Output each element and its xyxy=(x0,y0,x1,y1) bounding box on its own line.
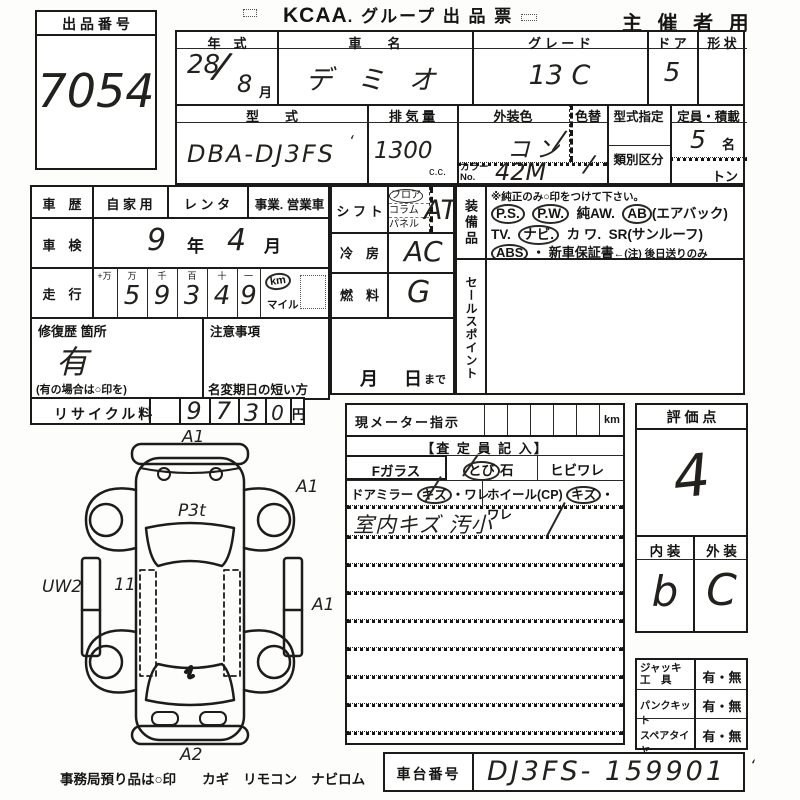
grid-line xyxy=(32,317,328,319)
mirror-label: ドアミラー xyxy=(351,488,413,502)
grid-line xyxy=(149,399,151,423)
repair-history-value: 有 xyxy=(56,337,88,383)
name-change-label: 名変期日の短い方 xyxy=(208,379,308,398)
shift-value: AT xyxy=(424,195,457,226)
history-option-business: 事業. 営業車 xyxy=(247,194,332,213)
sales-point-box: セールスポイント xyxy=(455,258,745,395)
name-change-made-suffix: まで xyxy=(424,371,446,387)
grid-line xyxy=(485,187,487,258)
inspection-year-value: 9 xyxy=(147,223,166,258)
shape-label: 形 状 xyxy=(697,33,747,52)
pen-tick: ‘ xyxy=(750,756,755,775)
name-change-day-unit: 日 xyxy=(404,365,422,391)
front-left-fender xyxy=(86,488,136,550)
shift-label: シ フ ト xyxy=(332,201,387,220)
class-division-label: 類別区分 xyxy=(607,149,670,168)
fuel-label: 燃 料 xyxy=(332,285,387,304)
grid-line xyxy=(332,232,453,234)
ton-unit: トン xyxy=(712,166,738,185)
grid-line xyxy=(260,267,261,317)
recycle-yen-unit: 円 xyxy=(290,404,307,423)
annotation-rear: A2 xyxy=(179,745,202,765)
puncture-kit-value: 有・無 xyxy=(694,696,750,715)
grid-line xyxy=(472,754,474,790)
inspection-label: 車 検 xyxy=(32,235,92,254)
jack-tools-label: ジャッキ 工 具 xyxy=(640,662,692,686)
mirror-ware: ・ワレ xyxy=(452,488,490,502)
mirror-row: ドアミラー キズ・ワレ xyxy=(351,484,489,504)
assessor-panel: 現メーター指示 km 【査 定 員 記 入】 Fガラス とび石 ヒビワレ ドアミ… xyxy=(345,403,625,745)
sales-point-label: セールスポイント xyxy=(463,266,480,390)
displacement-label: 排 気 量 xyxy=(367,106,457,125)
annotation-left: UW2 xyxy=(42,577,82,597)
model-label: 型 式 xyxy=(177,106,367,125)
sheet-title: KCAA . グループ 出 品 票 xyxy=(283,2,513,28)
equipment-ab: AB xyxy=(622,204,652,224)
car-name-label: 車 名 xyxy=(277,33,472,52)
note-line xyxy=(347,619,623,623)
pen-scribble xyxy=(186,667,193,677)
mileage-digit: 9 xyxy=(237,281,260,311)
equipment-line-1: P.S. P.W. 純AW. AB(エアバック) xyxy=(491,202,728,224)
meter-label: 現メーター指示 xyxy=(355,412,460,431)
interior-label: 内 装 xyxy=(637,540,693,560)
grid-line xyxy=(637,689,746,690)
equipment-tv: TV. xyxy=(491,227,511,242)
equipment-label: 装備品 xyxy=(461,191,480,255)
shift-option-panel: パネル xyxy=(389,218,429,231)
grid-line xyxy=(637,559,746,560)
rear-right-fender xyxy=(244,630,294,692)
month-suffix: 月 xyxy=(259,82,272,101)
lot-number-label: 出 品 番 号 xyxy=(37,12,155,36)
recycle-digit: 9 xyxy=(179,397,209,425)
grid-line xyxy=(576,405,577,435)
note-line xyxy=(347,703,623,707)
interior-exterior-panel: 内 装 外 装 b C xyxy=(635,535,748,633)
capacity-label: 定員・積載 xyxy=(670,106,747,125)
exterior-grade-value: C xyxy=(693,565,750,616)
score-label: 評 価 点 xyxy=(637,405,746,430)
fglass-label: Fガラス xyxy=(347,460,445,480)
grid-line xyxy=(537,455,538,480)
note-line xyxy=(347,563,623,567)
model-tick-mark: ‘ xyxy=(349,132,354,150)
grid-line xyxy=(92,217,94,267)
year-month-value: 8 xyxy=(237,70,252,98)
mileage-digit: 5 xyxy=(117,281,147,311)
right-tail-light xyxy=(200,712,226,725)
mileage-label: 走 行 xyxy=(32,284,92,303)
jack-tools-value: 有・無 xyxy=(694,667,750,686)
annotation-front: A1 xyxy=(181,430,204,447)
score-panel: 評 価 点 4 xyxy=(635,403,748,538)
lot-number-box: 出 品 番 号 7054 xyxy=(35,10,157,170)
grid-line xyxy=(347,480,623,481)
footer-item-key: カギ xyxy=(202,768,229,788)
rear-left-wheel xyxy=(90,646,122,678)
grade-label: グ レ ー ド xyxy=(472,33,647,52)
recycle-digit: 7 xyxy=(209,397,238,425)
inspection-month-value: 4 xyxy=(227,223,246,258)
shift-option-column: コラム xyxy=(389,204,429,218)
grid-line xyxy=(347,435,623,437)
grade-value: 13 C xyxy=(472,60,647,91)
spec-table: 年 式 車 名 グ レ ー ド ド ア 形 状 28 / 8 月 デ ミ オ 1… xyxy=(175,30,745,185)
mileage-spare-box xyxy=(300,275,326,309)
mileage-digit: 3 xyxy=(177,281,207,311)
brand-logo: KCAA xyxy=(283,4,348,28)
grid-line xyxy=(599,405,600,435)
footer-note-row: 事務局預り品は○印 カギ リモコン ナビロム xyxy=(60,768,365,788)
spacer xyxy=(176,768,202,788)
puncture-kit-label: パンクキット xyxy=(640,697,692,727)
history-option-private: 自 家 用 xyxy=(92,194,167,213)
mileage-col-header: +万 xyxy=(92,269,117,282)
type-designation-label: 型式指定 xyxy=(607,106,670,125)
car-damage-diagram: A1 A1 P3t UW2 11 A1 A2 xyxy=(40,430,340,765)
grid-line xyxy=(530,405,531,435)
recycle-fee-label: リサイクル料 xyxy=(54,404,155,424)
equipment-ps: P.S. xyxy=(491,204,525,224)
chassis-number-label: 車台番号 xyxy=(385,764,472,784)
model-value: DBA-DJ3FS xyxy=(187,140,335,168)
right-doors-dashed xyxy=(224,570,240,676)
spacer xyxy=(229,768,243,788)
recycle-digit: 0 xyxy=(265,401,290,425)
km-unit-circled: km xyxy=(264,271,292,291)
jack-label-line1: ジャッキ xyxy=(640,662,692,674)
windshield xyxy=(146,523,234,566)
chassis-number-box: 車台番号 DJ3FS- 159901 xyxy=(383,752,745,792)
displacement-value: 1300 xyxy=(374,138,433,164)
recycle-fee-row: リサイクル料 9 7 3 0 円 xyxy=(30,397,305,425)
annotation-right: A1 xyxy=(311,595,334,615)
chassis-number-value: DJ3FS- 159901 xyxy=(487,756,726,787)
wheel-kizu-circled: キズ xyxy=(566,486,601,504)
grid-line xyxy=(202,317,204,402)
equipment-box: 装備品 ※純正のみ○印をつけて下さい。 P.S. P.W. 純AW. AB(エア… xyxy=(455,185,745,260)
office-keep-note: 事務局預り品は○印 xyxy=(60,768,176,788)
left-sill-panel xyxy=(82,558,100,656)
jack-label-line2: 工 具 xyxy=(640,674,692,686)
exterior-color-label: 外装色 xyxy=(457,106,569,125)
door-value: 5 xyxy=(647,58,697,88)
grid-line xyxy=(637,718,746,719)
grid-line xyxy=(485,260,487,393)
equipment-pw: P.W. xyxy=(532,204,569,224)
sheet-title-text: . グループ 出 品 票 xyxy=(348,2,514,27)
displacement-unit: c.c. xyxy=(429,166,446,178)
rear-bumper xyxy=(132,726,248,744)
front-right-fender xyxy=(244,488,294,550)
repair-history-note: (有の場合は○印を) xyxy=(36,381,127,397)
color-change-label: 色替 xyxy=(569,106,607,125)
accessories-panel: ジャッキ 工 具 有・無 パンクキット 有・無 スペアタイヤ 有・無 xyxy=(635,658,748,750)
annotation-front-right: A1 xyxy=(295,477,318,497)
annotation-hood: P3t xyxy=(178,501,207,521)
spacer xyxy=(297,768,311,788)
grid-line xyxy=(332,272,453,274)
shift-column: シ フ ト フロア コラム パネル AT 冷 房 AC 燃 料 G 月 日 まで xyxy=(330,185,455,395)
wheel-label: ホイール(CP) xyxy=(487,488,563,502)
equipment-aw: 純AW. xyxy=(577,206,615,221)
fglass-ishi: 石 xyxy=(500,463,514,478)
color-no-label: カラーNo. xyxy=(460,163,490,184)
score-value: 4 xyxy=(634,436,750,515)
equipment-kawa: カ ワ. xyxy=(567,227,602,242)
rear-left-fender xyxy=(86,630,136,692)
history-label: 車 歴 xyxy=(32,194,92,213)
grid-line xyxy=(670,157,747,161)
note-line xyxy=(347,647,623,651)
left-doors-dashed xyxy=(140,570,156,676)
interior-grade-value: b xyxy=(637,567,693,616)
grid-line xyxy=(553,405,554,435)
grid-line xyxy=(507,405,508,435)
history-table: 車 歴 自 家 用 レ ン タ 事業. 営業車 車 検 9 年 4 月 走 行 … xyxy=(30,185,330,400)
mileage-digit: 9 xyxy=(147,281,177,311)
caution-label: 注意事項 xyxy=(210,321,260,340)
door-label: ド ア xyxy=(647,33,697,52)
note-line xyxy=(347,535,623,539)
dotted-mark-left xyxy=(243,9,257,17)
footer-item-navirom: ナビロム xyxy=(311,768,365,788)
fglass-box: Fガラス xyxy=(347,455,447,480)
meter-km-unit: km xyxy=(604,414,620,426)
auction-sheet: { "header": { "lot_label": "出 品 番 号", "l… xyxy=(0,0,800,800)
exterior-label: 外 装 xyxy=(693,540,750,560)
shift-options: フロア コラム パネル xyxy=(389,189,429,231)
left-tail-light xyxy=(152,712,178,725)
note-line xyxy=(347,591,623,595)
history-option-rental: レ ン タ xyxy=(167,194,247,213)
equipment-sr: SR(サンルーフ) xyxy=(609,227,703,242)
mile-unit: マイル xyxy=(267,297,299,312)
equipment-ab-paren: (エアバック) xyxy=(652,206,728,221)
mileage-digit: 4 xyxy=(207,281,237,311)
inspection-month-unit: 月 xyxy=(264,232,281,257)
car-name-value: デ ミ オ xyxy=(277,58,472,97)
front-right-wheel xyxy=(258,504,290,536)
recycle-digit: 3 xyxy=(238,399,265,427)
grid-line xyxy=(482,480,483,505)
fuel-value: G xyxy=(407,275,430,310)
dotted-mark-right xyxy=(521,14,537,21)
grid-line xyxy=(484,405,485,435)
inspection-year-unit: 年 xyxy=(187,232,204,257)
spare-tire-value: 有・無 xyxy=(694,726,750,745)
front-left-wheel xyxy=(90,504,122,536)
note-line xyxy=(347,731,623,735)
note-line xyxy=(347,675,623,679)
grid-line xyxy=(332,317,453,319)
capacity-unit: 名 xyxy=(722,134,735,153)
annotation-door: 11 xyxy=(114,575,136,595)
name-change-month-unit: 月 xyxy=(360,365,378,391)
cooling-value: AC xyxy=(404,235,443,268)
footer-item-remote: リモコン xyxy=(243,768,297,788)
car-top-view: A1 A1 P3t UW2 11 A1 A2 xyxy=(40,430,340,765)
cooling-label: 冷 房 xyxy=(332,243,387,262)
color-no-value: 42M xyxy=(495,158,546,186)
lot-number-value: 7054 xyxy=(37,64,155,118)
rear-right-wheel xyxy=(258,646,290,678)
grid-line xyxy=(607,145,670,146)
capacity-value: 5 xyxy=(690,125,706,154)
grid-line xyxy=(32,217,328,219)
shift-option-floor: フロア xyxy=(389,189,423,203)
fglass-option-crack: ヒビワレ xyxy=(550,459,604,479)
